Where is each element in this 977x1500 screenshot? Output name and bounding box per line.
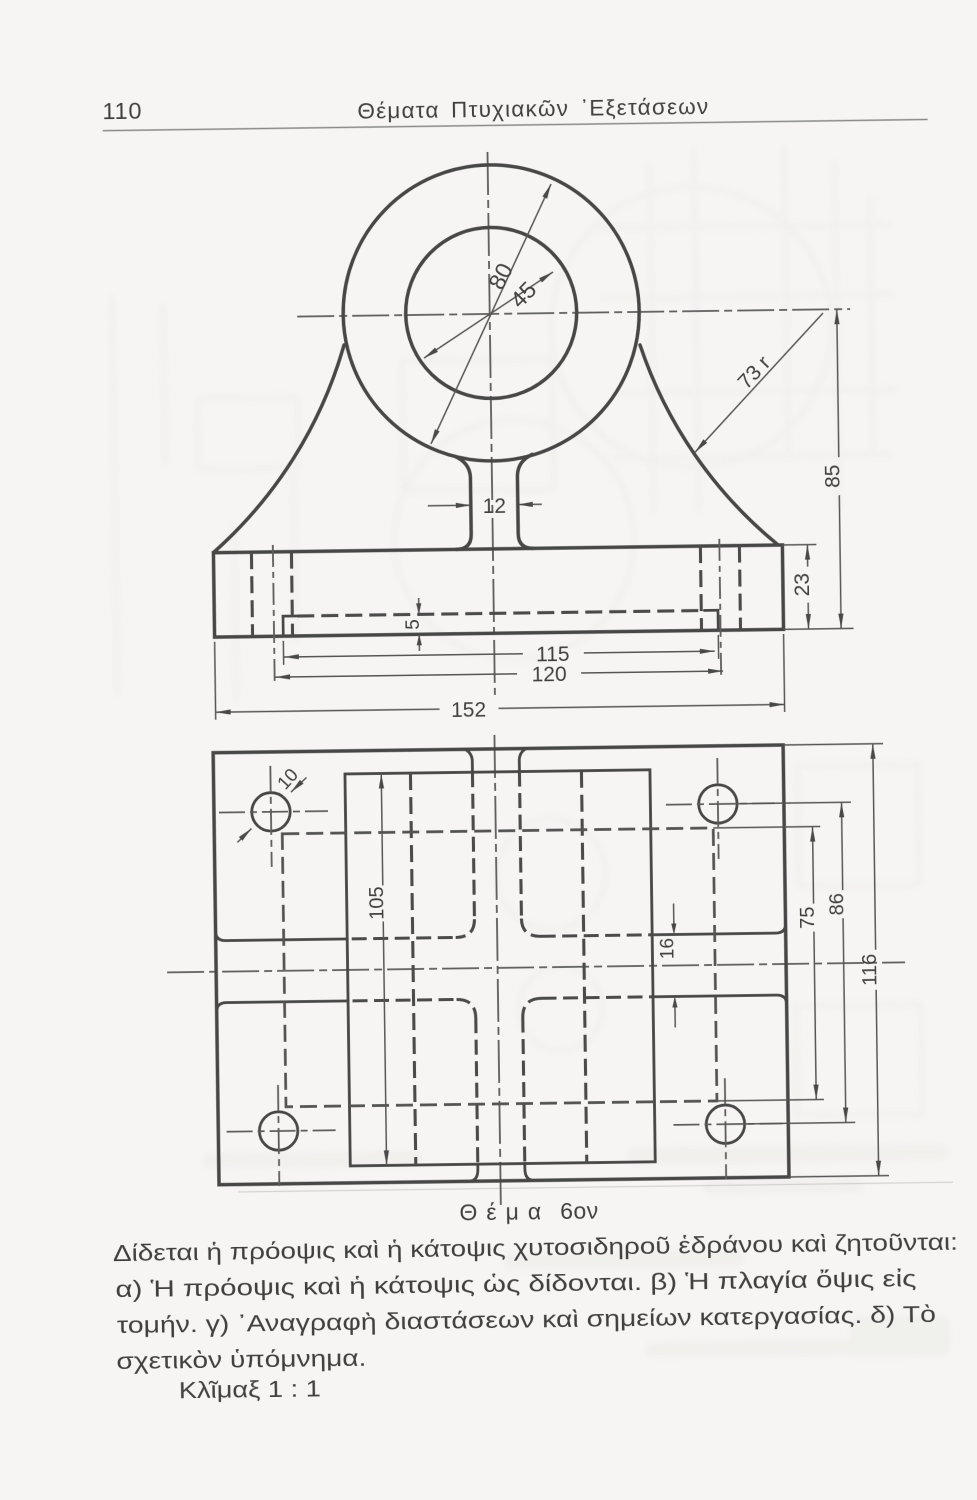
svg-text:Θέμα6ον: Θέμα6ον	[459, 1198, 599, 1226]
svg-text:α) Ἡ πρόοψις καὶ ἡ κάτοψις ὡς: α) Ἡ πρόοψις καὶ ἡ κάτοψις ὡς δίδονται. …	[115, 1265, 916, 1302]
svg-text:120: 120	[531, 663, 566, 686]
svg-text:Θέματα Πτυχιακῶν ᾿Εξετάσεων: Θέματα Πτυχιακῶν ᾿Εξετάσεων	[357, 94, 709, 124]
svg-text:73 r: 73 r	[734, 352, 776, 394]
svg-text:75: 75	[797, 906, 819, 929]
svg-text:110: 110	[102, 98, 142, 125]
svg-text:10: 10	[273, 764, 302, 793]
svg-text:86: 86	[826, 893, 848, 916]
svg-text:116: 116	[859, 954, 881, 986]
svg-text:τομήν. γ) ᾿Αναγραφὴ διαστάσεων: τομήν. γ) ᾿Αναγραφὴ διαστάσεων καὶ σημεί…	[117, 1301, 936, 1338]
svg-text:5: 5	[403, 619, 424, 630]
svg-text:Κλῖμαξ 1 : 1: Κλῖμαξ 1 : 1	[179, 1375, 321, 1403]
svg-text:152: 152	[451, 699, 486, 722]
svg-text:23: 23	[791, 573, 814, 597]
svg-text:12: 12	[482, 495, 506, 518]
svg-text:85: 85	[821, 464, 844, 488]
svg-text:105: 105	[366, 886, 388, 920]
svg-text:16: 16	[657, 938, 678, 959]
svg-text:σχετικὸν ὑπόμνημα.: σχετικὸν ὑπόμνημα.	[116, 1345, 366, 1374]
